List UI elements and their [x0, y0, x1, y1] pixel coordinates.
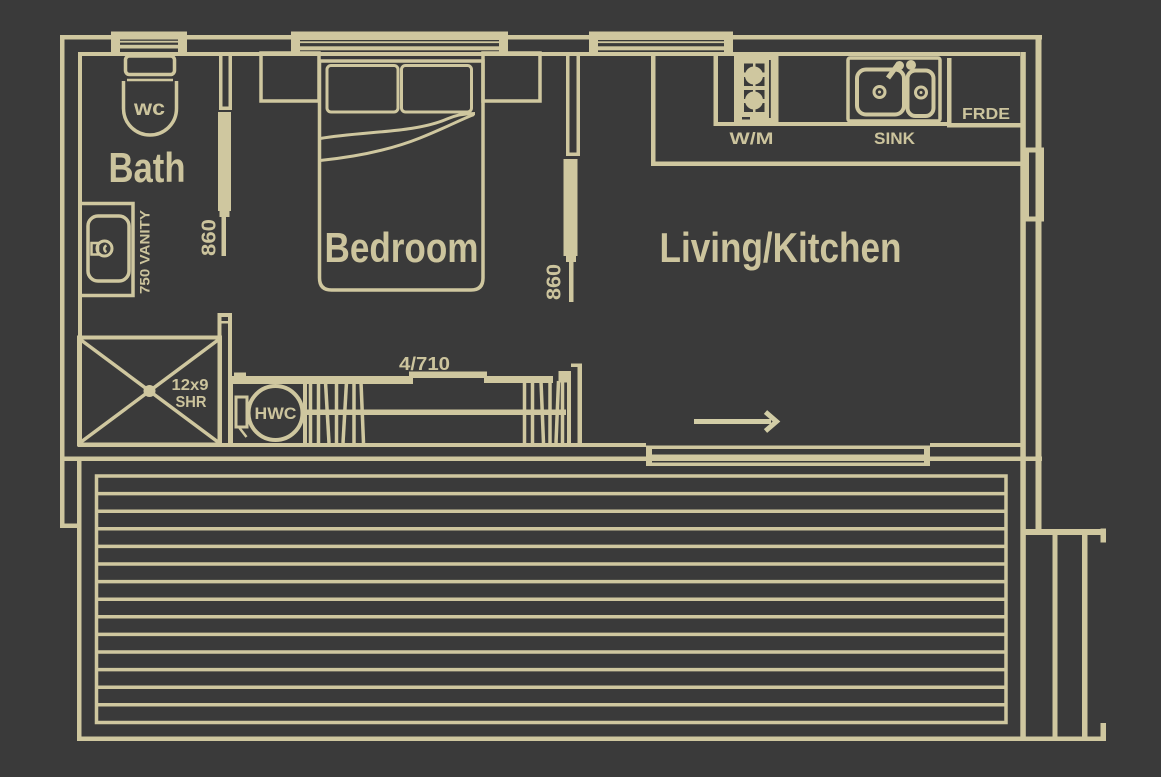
svg-text:750 VANITY: 750 VANITY: [137, 209, 153, 294]
svg-text:860: 860: [199, 219, 221, 256]
svg-text:wc: wc: [133, 97, 165, 120]
svg-text:SINK: SINK: [874, 129, 916, 148]
svg-text:860: 860: [544, 264, 566, 300]
svg-text:HWC: HWC: [255, 404, 297, 423]
svg-text:FRDE: FRDE: [962, 106, 1010, 123]
svg-text:Living/Kitchen: Living/Kitchen: [660, 224, 902, 271]
svg-text:Bedroom: Bedroom: [325, 224, 479, 271]
svg-text:W/M: W/M: [730, 129, 774, 148]
svg-text:SHR: SHR: [176, 394, 207, 411]
svg-text:12x9: 12x9: [172, 377, 209, 394]
svg-text:Bath: Bath: [109, 144, 186, 191]
svg-text:4/710: 4/710: [399, 354, 450, 374]
